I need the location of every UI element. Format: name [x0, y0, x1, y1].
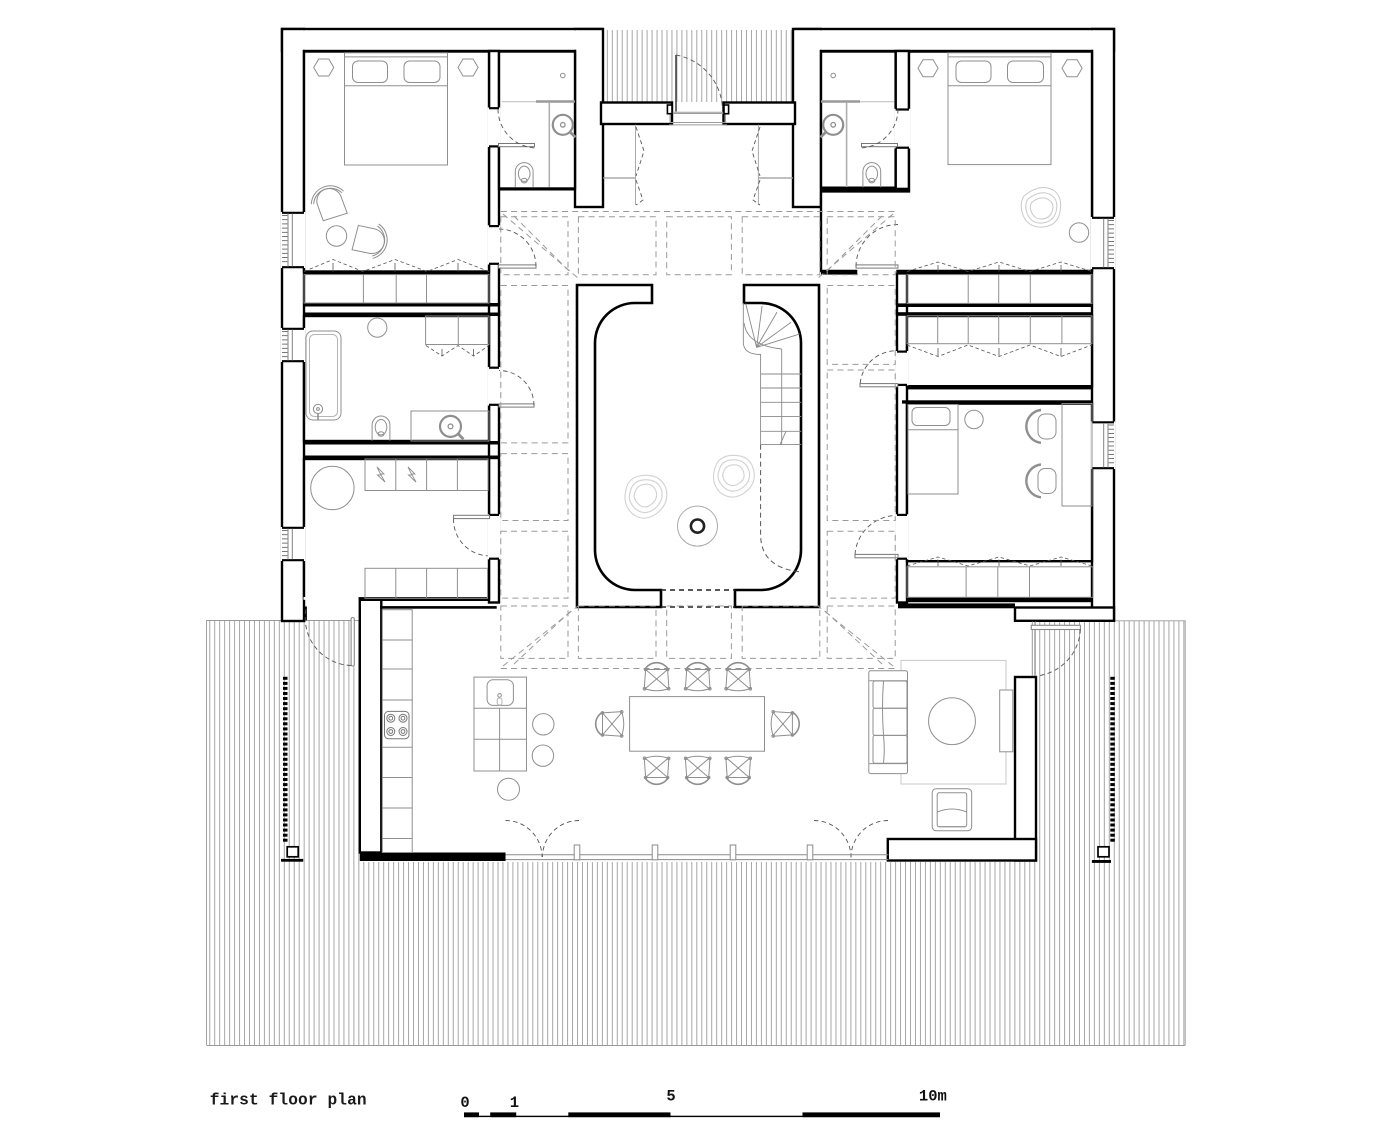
svg-text:first floor plan: first floor plan — [210, 1092, 367, 1110]
svg-text:10m: 10m — [919, 1087, 947, 1105]
svg-text:1: 1 — [510, 1094, 519, 1112]
svg-text:5: 5 — [666, 1087, 675, 1105]
svg-text:0: 0 — [460, 1094, 469, 1112]
